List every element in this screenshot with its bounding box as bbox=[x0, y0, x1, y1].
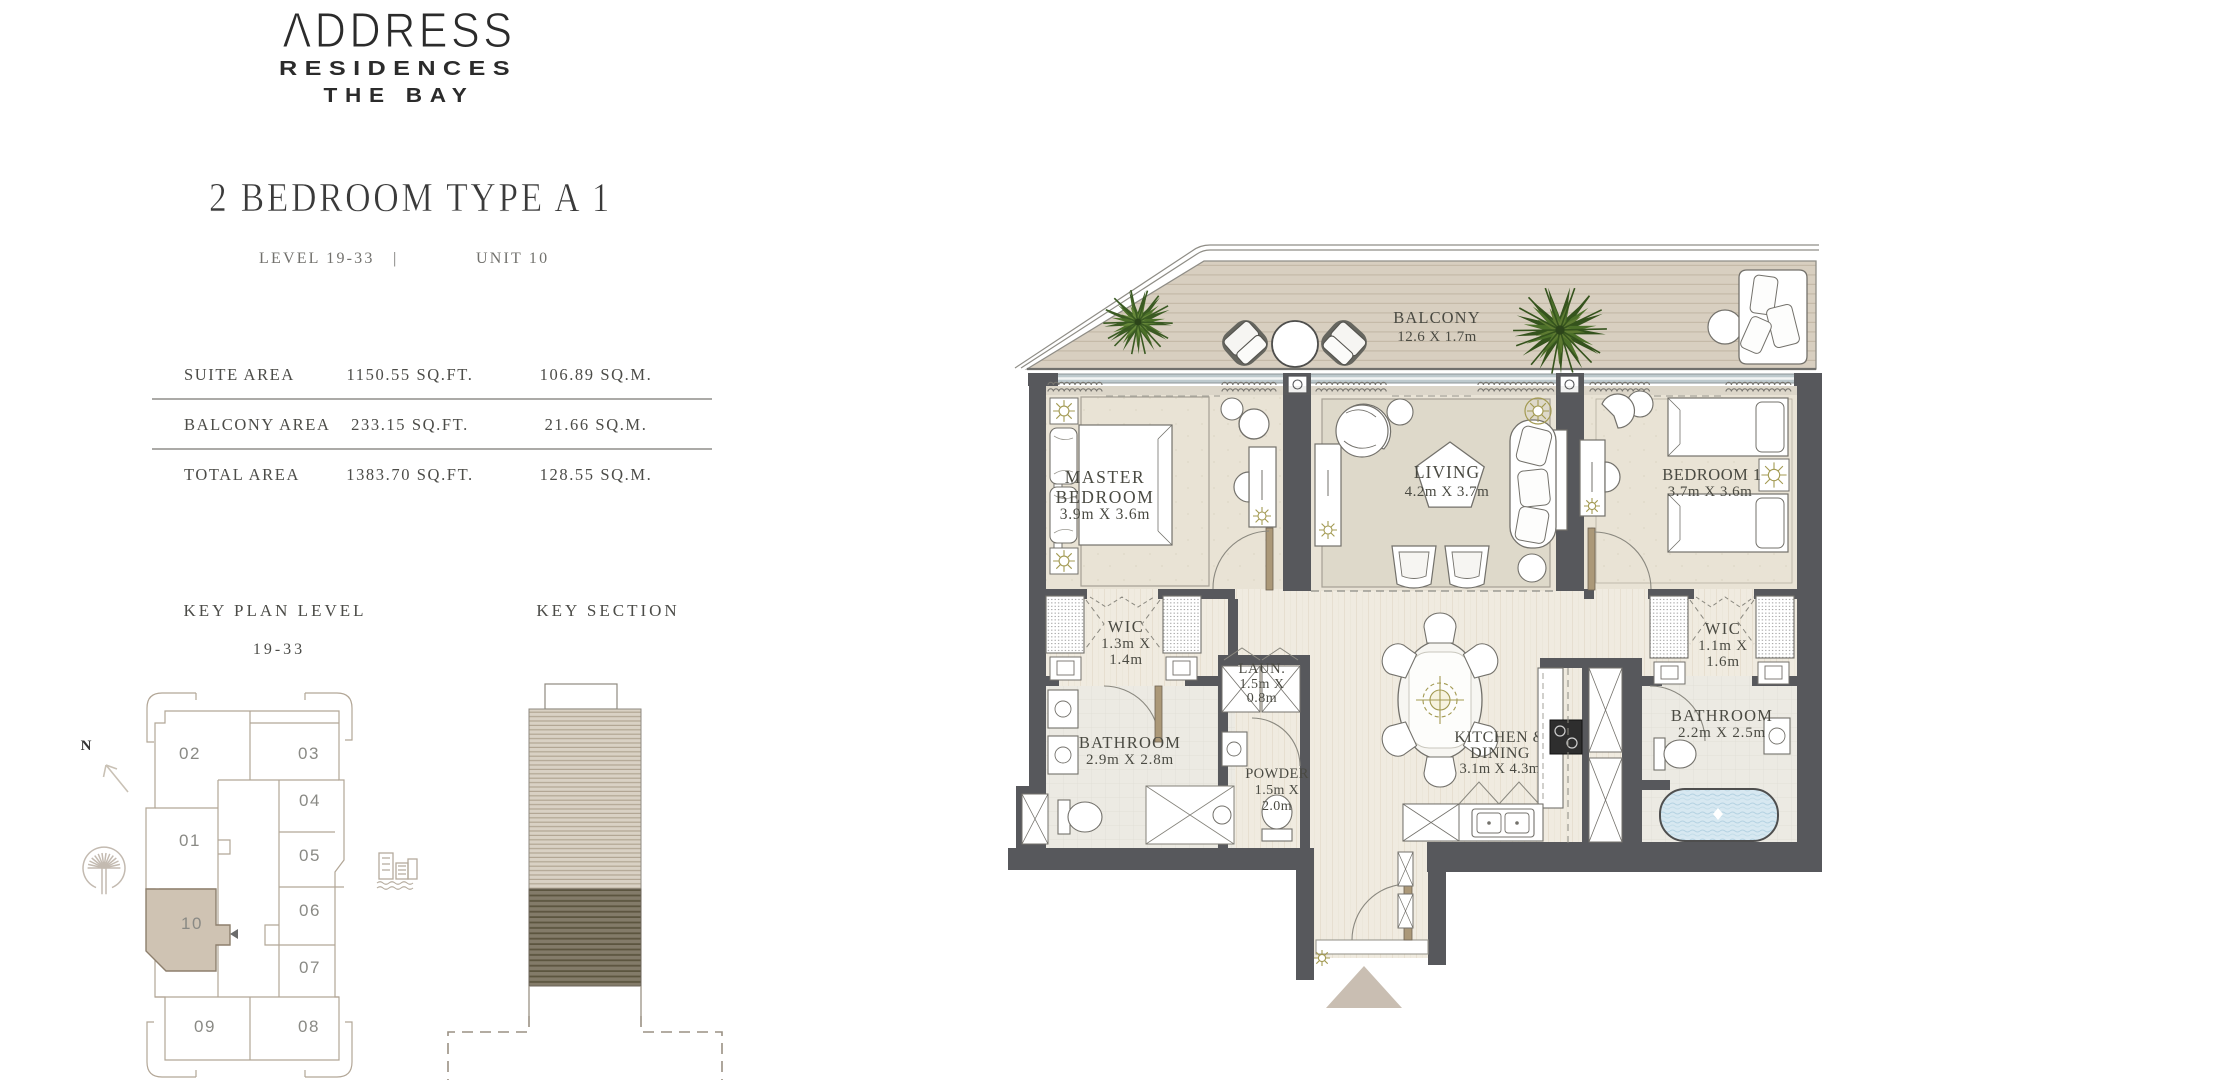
svg-text:08: 08 bbox=[298, 1017, 320, 1036]
svg-text:BALCONY: BALCONY bbox=[1393, 308, 1480, 327]
svg-text:09: 09 bbox=[194, 1017, 216, 1036]
svg-text:UNIT 10: UNIT 10 bbox=[476, 250, 549, 267]
svg-text:BATHROOM: BATHROOM bbox=[1079, 733, 1181, 752]
svg-text:BALCONY AREA: BALCONY AREA bbox=[184, 415, 330, 434]
svg-text:3.7m X 3.6m: 3.7m X 3.6m bbox=[1668, 484, 1753, 500]
svg-text:MASTER: MASTER bbox=[1065, 467, 1146, 487]
svg-text:LAUN.: LAUN. bbox=[1239, 661, 1286, 677]
svg-text:21.66 SQ.M.: 21.66 SQ.M. bbox=[545, 415, 648, 434]
svg-text:WIC: WIC bbox=[1705, 619, 1742, 638]
svg-text:04: 04 bbox=[299, 791, 321, 810]
svg-text:RESIDENCES: RESIDENCES bbox=[279, 57, 517, 80]
svg-text:01: 01 bbox=[179, 831, 201, 850]
svg-text:WIC: WIC bbox=[1108, 617, 1145, 636]
svg-text:LEVEL 19-33 |: LEVEL 19-33 | bbox=[259, 250, 399, 267]
svg-text:3.1m X 4.3m: 3.1m X 4.3m bbox=[1460, 761, 1541, 777]
svg-text:ΛDDRESS: ΛDDRESS bbox=[283, 4, 516, 58]
svg-text:KEY PLAN LEVEL: KEY PLAN LEVEL bbox=[183, 601, 366, 620]
svg-text:BEDROOM: BEDROOM bbox=[1056, 487, 1155, 507]
svg-text:10: 10 bbox=[181, 914, 203, 933]
svg-text:02: 02 bbox=[179, 744, 201, 763]
svg-text:06: 06 bbox=[299, 901, 321, 920]
svg-text:106.89 SQ.M.: 106.89 SQ.M. bbox=[540, 365, 653, 384]
svg-text:BEDROOM 1: BEDROOM 1 bbox=[1662, 465, 1761, 484]
svg-text:POWDER: POWDER bbox=[1245, 766, 1309, 782]
svg-text:KEY SECTION: KEY SECTION bbox=[536, 601, 679, 620]
svg-text:12.6 X 1.7m: 12.6 X 1.7m bbox=[1397, 329, 1476, 345]
svg-text:N: N bbox=[81, 738, 92, 754]
svg-text:1.5m X: 1.5m X bbox=[1240, 677, 1285, 692]
svg-text:1383.70 SQ.FT.: 1383.70 SQ.FT. bbox=[346, 465, 474, 484]
svg-text:2.0m: 2.0m bbox=[1262, 799, 1292, 814]
svg-text:BATHROOM: BATHROOM bbox=[1671, 706, 1773, 725]
svg-text:0.8m: 0.8m bbox=[1247, 691, 1277, 706]
svg-text:KITCHEN &: KITCHEN & bbox=[1454, 729, 1545, 746]
svg-text:2.9m X 2.8m: 2.9m X 2.8m bbox=[1086, 752, 1174, 768]
svg-text:TOTAL AREA: TOTAL AREA bbox=[184, 465, 300, 484]
svg-text:128.55 SQ.M.: 128.55 SQ.M. bbox=[540, 465, 653, 484]
svg-text:1.4m: 1.4m bbox=[1109, 652, 1143, 668]
svg-text:3.9m X 3.6m: 3.9m X 3.6m bbox=[1060, 506, 1151, 523]
svg-text:19-33: 19-33 bbox=[253, 641, 305, 658]
svg-text:1.5m X: 1.5m X bbox=[1255, 783, 1299, 798]
svg-text:DINING: DINING bbox=[1470, 745, 1530, 762]
svg-text:2.2m X 2.5m: 2.2m X 2.5m bbox=[1678, 725, 1766, 741]
svg-text:1.1m X: 1.1m X bbox=[1698, 638, 1748, 654]
svg-text:07: 07 bbox=[299, 958, 321, 977]
svg-text:03: 03 bbox=[298, 744, 320, 763]
svg-text:LIVING: LIVING bbox=[1414, 462, 1480, 482]
svg-text:SUITE AREA: SUITE AREA bbox=[184, 365, 295, 384]
svg-text:233.15 SQ.FT.: 233.15 SQ.FT. bbox=[351, 415, 469, 434]
svg-text:1150.55 SQ.FT.: 1150.55 SQ.FT. bbox=[347, 365, 474, 384]
svg-text:2 BEDROOM TYPE A 1: 2 BEDROOM TYPE A 1 bbox=[209, 174, 612, 220]
svg-text:1.3m X: 1.3m X bbox=[1101, 636, 1151, 652]
svg-text:THE BAY: THE BAY bbox=[324, 84, 475, 107]
svg-text:05: 05 bbox=[299, 846, 321, 865]
svg-text:4.2m X 3.7m: 4.2m X 3.7m bbox=[1405, 484, 1490, 500]
svg-text:1.6m: 1.6m bbox=[1706, 654, 1740, 670]
